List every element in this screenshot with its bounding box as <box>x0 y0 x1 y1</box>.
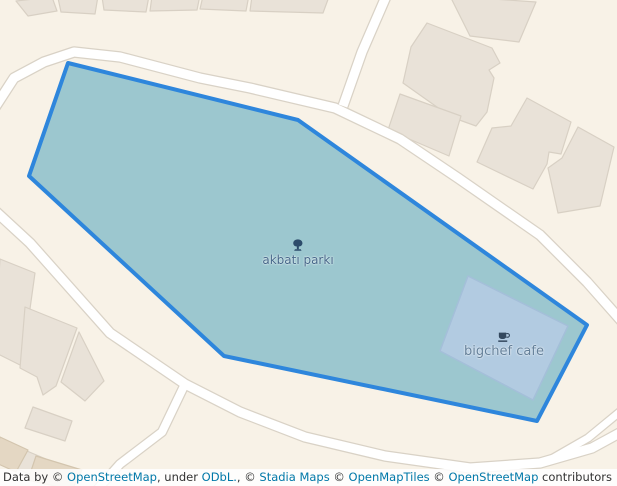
attribution-text: contributors <box>538 470 612 484</box>
openmaptiles-link[interactable]: OpenMapTiles <box>349 470 430 484</box>
building-footprint <box>16 0 57 16</box>
building-footprint <box>102 0 149 12</box>
building-footprint <box>25 407 72 441</box>
leaflet-map[interactable]: akbatı parkı bigchef cafe Leaflet | Data… <box>0 0 617 486</box>
attribution-text: | Data by © <box>0 470 67 484</box>
road <box>343 0 388 106</box>
attribution-bar: Leaflet | Data by © OpenStreetMap, under… <box>0 469 617 486</box>
building-footprint <box>450 0 536 42</box>
building-footprint <box>58 0 98 14</box>
building-footprint <box>150 0 200 11</box>
attribution-text: © <box>330 470 349 484</box>
attribution-text: , under <box>157 470 202 484</box>
stadia-maps-link[interactable]: Stadia Maps <box>259 470 329 484</box>
attribution-text: , © <box>237 470 259 484</box>
openstreetmap-contributors-link[interactable]: OpenStreetMap <box>448 470 538 484</box>
odbl-link[interactable]: ODbL. <box>202 470 237 484</box>
attribution-text: © <box>430 470 449 484</box>
map-svg[interactable] <box>0 0 617 486</box>
building-footprint <box>200 0 249 11</box>
building-footprint <box>250 0 330 13</box>
openstreetmap-link[interactable]: OpenStreetMap <box>67 470 157 484</box>
